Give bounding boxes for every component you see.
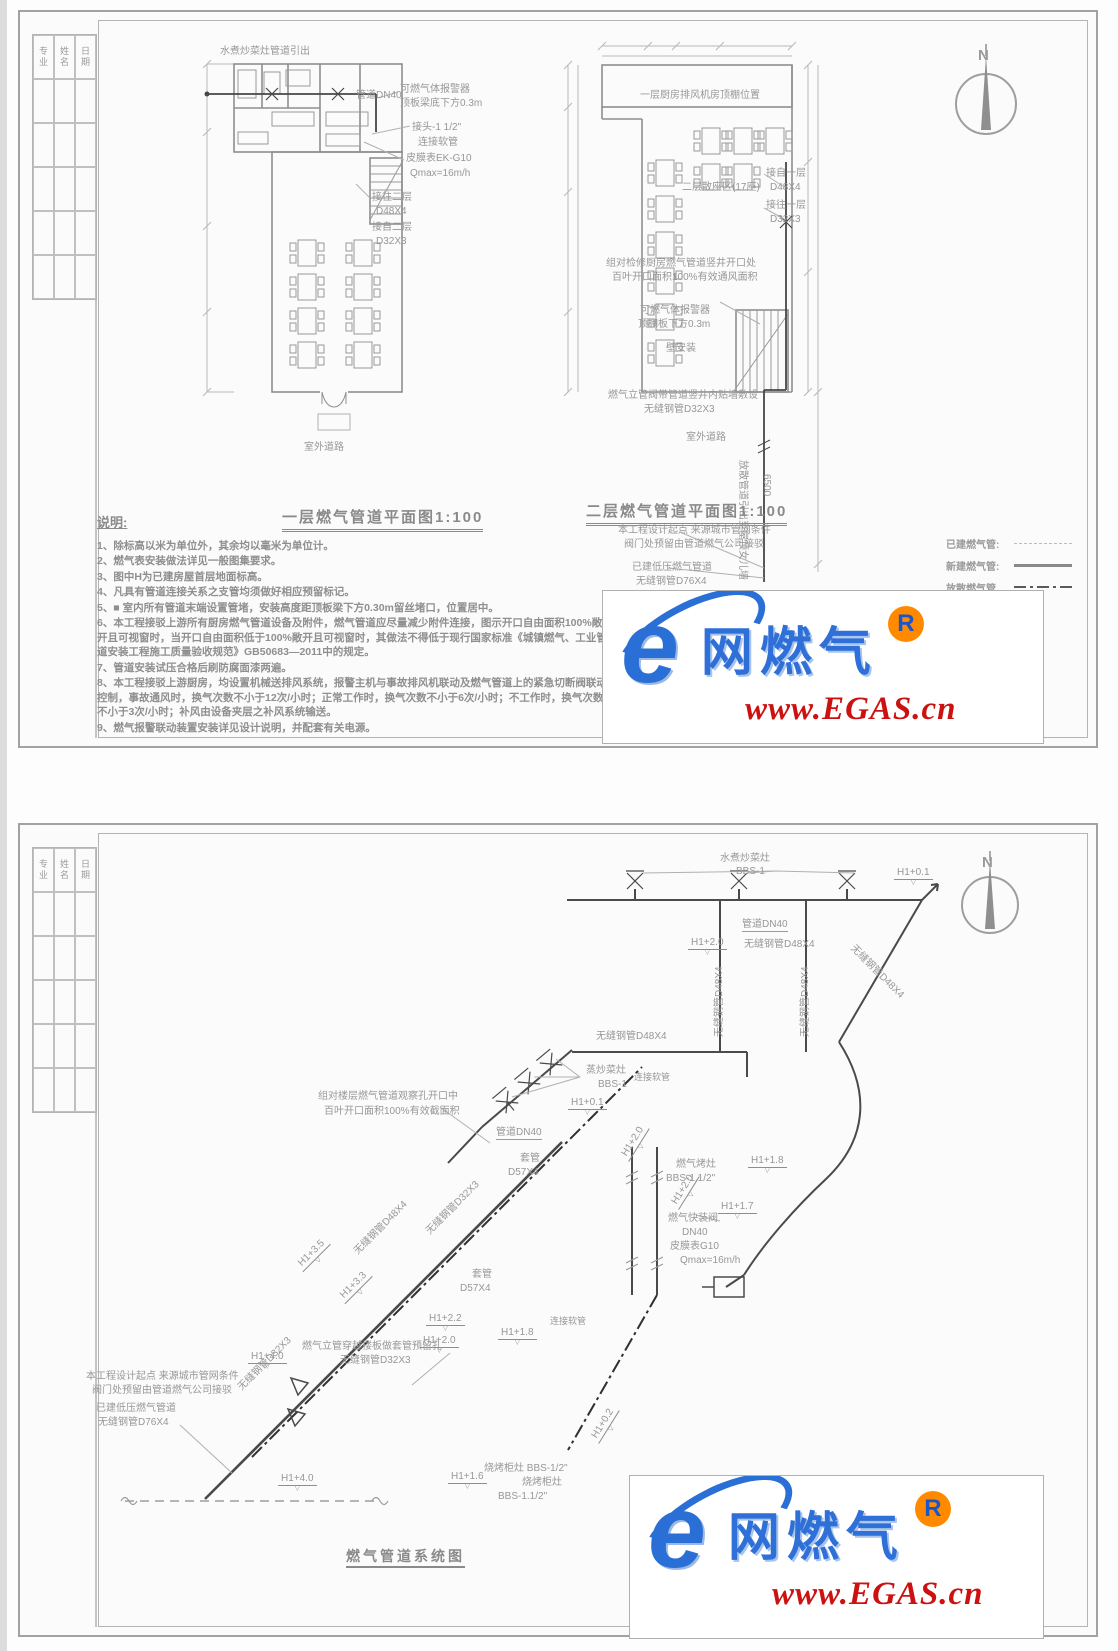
annotation: D48X4 [376, 206, 407, 217]
annotation: H1+2.2 [426, 1313, 465, 1326]
annotation: 无缝钢管D48X4 [744, 939, 815, 950]
titleblock-cell: 姓名 [54, 848, 75, 892]
titleblock-cell [54, 980, 75, 1024]
annotation: 组对检修厨房燃气管道竖井开口处 [606, 258, 756, 269]
sheet1-titleblock: 专业 姓名 日期 [32, 34, 97, 300]
annotation: 燃气烤灶 [676, 1159, 716, 1170]
titleblock-col-label: 专业 [37, 46, 50, 68]
annotation: 无缝钢管D48X4 [714, 966, 725, 1037]
annotation: 连接软管 [634, 1073, 670, 1083]
drawing-canvas: 专业 姓名 日期 [0, 0, 1118, 1651]
annotation: 已建低压燃气管道 [96, 1403, 176, 1414]
annotation: D57X4 [508, 1167, 539, 1178]
annotation: 管道DN40 [742, 919, 788, 932]
annotation: N [982, 855, 993, 872]
legend-line-new [1014, 564, 1072, 567]
annotation: 无缝钢管D48X4 [596, 1031, 667, 1042]
sheet-floor-plans: 专业 姓名 日期 [18, 10, 1098, 748]
annotation: BBS-1.1/2" [498, 1491, 547, 1502]
watermark-box: e 网燃气 R www.EGAS.cn [602, 590, 1044, 744]
annotation: 接往一层 [766, 200, 806, 211]
titleblock-cell [54, 211, 75, 255]
legend-line-vent [1014, 586, 1072, 588]
annotation: 可燃气体报警器 [640, 305, 710, 316]
annotation: H1+4.0 [248, 1351, 287, 1364]
titleblock-cell [54, 1024, 75, 1068]
annotation: D32X3 [770, 214, 801, 225]
annotation: 百叶开口面积100%有效截面积 [324, 1106, 460, 1117]
titleblock-col-label: 姓名 [58, 859, 71, 881]
titleblock-cell [33, 980, 54, 1024]
note-line: 2、燃气表安装做法详见一般图集要求。 [97, 554, 609, 568]
titleblock-cell [33, 167, 54, 211]
note-line: 3、图中H为已建房屋首层地面标高。 [97, 570, 609, 584]
annotation: 管道DN40 [356, 90, 402, 101]
annotation: 本工程设计起点 来源城市管网条件 [86, 1371, 239, 1382]
annotation: BBS-1 [736, 866, 765, 877]
note-line: 1、除标高以米为单位外，其余均以毫米为单位计。 [97, 539, 609, 553]
note-line: 9、燃气报警联动装置安装详见设计说明，并配套有关电源。 [97, 721, 609, 735]
titleblock-cell [33, 211, 54, 255]
annotation: 接自二层 [372, 222, 412, 233]
sheet2-titleblock: 专业 姓名 日期 [32, 847, 97, 1113]
annotation: 烧烤柜灶 BBS-1/2" [484, 1463, 568, 1474]
legend-line-existing [1014, 543, 1072, 544]
note-line: 8、本工程接驳上游厨房，均设置机械送排风系统，报警主机与事故排风机联动及燃气管道… [97, 676, 609, 719]
titleblock-cell [75, 167, 96, 211]
watermark-row: e 网燃气 R [640, 1480, 951, 1584]
titleblock-cell [33, 892, 54, 936]
annotation: 套管 [472, 1269, 492, 1280]
annotation: 顶棚板下方0.3m [638, 319, 710, 330]
titleblock-cell [33, 1068, 54, 1112]
annotation: 无缝钢管D32X3 [340, 1355, 411, 1366]
legend-label: 已建燃气管: [946, 536, 1012, 551]
legend-row-new: 新建燃气管: [946, 554, 1096, 576]
annotation: 阀门处预留由管道燃气公司接驳 [92, 1385, 232, 1396]
annotation: H1+1.6 [448, 1471, 487, 1484]
legend-label: 新建燃气管: [946, 558, 1012, 573]
annotation: 二层燃气管道平面图1:100 [586, 504, 787, 526]
annotation: 燃气管道系统图 [346, 1549, 465, 1568]
annotation: 接头-1 1/2" [412, 122, 461, 133]
note-line: 5、■ 室内所有管道末端设置管堵，安装高度距顶板梁下方0.30m留丝堵口，位置居… [97, 601, 609, 615]
titleblock-cell [54, 255, 75, 299]
annotation: 室外道路 [304, 442, 344, 453]
registered-trademark-icon: R [915, 1491, 951, 1527]
annotation: 顶板梁底下方0.3m [400, 98, 482, 109]
watermark-box: e 网燃气 R www.EGAS.cn [629, 1475, 1044, 1639]
annotation: Qmax=16m/h [410, 168, 470, 179]
annotation: 连接软管 [418, 137, 458, 148]
titleblock-cell: 专业 [33, 848, 54, 892]
titleblock-cell [54, 167, 75, 211]
titleblock-cell: 姓名 [54, 35, 75, 79]
titleblock-cell [54, 123, 75, 167]
watermark-url[interactable]: www.EGAS.cn [745, 691, 957, 728]
ie-logo-icon: e [613, 595, 695, 699]
titleblock-cell [75, 936, 96, 980]
annotation: H1+0.1 [568, 1097, 607, 1110]
annotation: 皮膜表G10 [670, 1241, 719, 1252]
annotation: 已建低压燃气管道 [632, 562, 712, 573]
annotation: H1+4.0 [278, 1473, 317, 1486]
titleblock-cell [54, 892, 75, 936]
titleblock-col-label: 专业 [37, 859, 50, 881]
watermark-row: e 网燃气 R [613, 595, 924, 699]
titleblock-cell [75, 211, 96, 255]
annotation: H1+1.8 [498, 1327, 537, 1340]
annotation: 一层燃气管道平面图1:100 [282, 510, 483, 532]
titleblock-cell [33, 936, 54, 980]
annotation: 接往二层 [372, 192, 412, 203]
annotation: 无缝钢管D76X4 [636, 576, 707, 587]
notes-list: 1、除标高以米为单位外，其余均以毫米为单位计。2、燃气表安装做法详见一般图集要求… [97, 539, 609, 735]
titleblock-cell: 日期 [75, 35, 96, 79]
titleblock-cell [75, 892, 96, 936]
titleblock-cell [54, 936, 75, 980]
titleblock-cell [54, 1068, 75, 1112]
titleblock-cell [75, 1024, 96, 1068]
annotation: BBS-1.1/2" [666, 1173, 715, 1184]
titleblock-col-label: 日期 [79, 859, 92, 881]
annotation: H1+1.7 [718, 1201, 757, 1214]
titleblock-cell [75, 980, 96, 1024]
titleblock-cell [33, 123, 54, 167]
page-edge-strip [0, 0, 7, 1651]
annotation: 水煮炒菜灶 [720, 853, 770, 864]
titleblock-cell [75, 123, 96, 167]
annotation: 一层厨房排风机房顶棚位置 [640, 90, 760, 101]
annotation: 接自一层 [766, 168, 806, 179]
titleblock-cell [75, 1068, 96, 1112]
annotation: 连接软管 [550, 1317, 586, 1327]
annotation: 管道DN40 [496, 1127, 542, 1140]
annotation: 本工程设计起点 来源城市管网条件 [618, 525, 771, 536]
annotation: 套管 [520, 1153, 540, 1164]
annotation: H1+0.1 [894, 867, 933, 880]
annotation: 阀门处预留由管道燃气公司接驳 [624, 539, 764, 550]
annotation: Qmax=16m/h [680, 1255, 740, 1266]
annotation: 皮膜表EK-G10 [406, 153, 472, 164]
annotation: 无缝钢管D32X3 [644, 404, 715, 415]
annotation: 壁安装 [666, 343, 696, 354]
pipe-legend: 已建燃气管: 新建燃气管: 放散燃气管 [946, 532, 1096, 598]
annotation: D32X3 [376, 236, 407, 247]
annotation: 可燃气体报警器 [400, 84, 470, 95]
notes-block: 说明: 1、除标高以米为单位外，其余均以毫米为单位计。2、燃气表安装做法详见一般… [97, 512, 609, 736]
titleblock-cell [33, 79, 54, 123]
annotation: 烧烤柜灶 [522, 1477, 562, 1488]
annotation: 无缝钢管D76X4 [98, 1417, 169, 1428]
titleblock-cell [75, 255, 96, 299]
titleblock-col-label: 日期 [79, 46, 92, 68]
annotation: 组对楼层燃气管道观察孔开口中 [318, 1091, 458, 1102]
annotation: 无缝钢管D48X4 [800, 966, 811, 1037]
note-line: 4、凡具有管道连接关系之支管均须做好相应预留标记。 [97, 585, 609, 599]
legend-row-existing: 已建燃气管: [946, 532, 1096, 554]
titleblock-cell: 日期 [75, 848, 96, 892]
annotation: BBS-1 [598, 1079, 627, 1090]
annotation: H1+2.0 [688, 937, 727, 950]
titleblock-cell [54, 79, 75, 123]
titleblock-cell [33, 255, 54, 299]
annotation: H1+1.8 [748, 1155, 787, 1168]
annotation: DN40 [682, 1227, 708, 1238]
titleblock-col-label: 姓名 [58, 46, 71, 68]
annotation: 水煮炒菜灶管道引出 [220, 46, 310, 57]
annotation: 6500 [761, 474, 772, 496]
annotation: D48X4 [770, 182, 801, 193]
annotation: 百叶开口面积100%有效通风面积 [612, 272, 758, 283]
annotation: N [978, 48, 989, 65]
note-line: 7、管道安装试压合格后刷防腐面漆两遍。 [97, 661, 609, 675]
titleblock-cell [75, 79, 96, 123]
sheet-system-diagram: 专业 姓名 日期 [18, 823, 1098, 1637]
annotation: D57X4 [460, 1283, 491, 1294]
registered-trademark-icon: R [888, 606, 924, 642]
ie-logo-icon: e [640, 1480, 722, 1584]
annotation: 燃气立管阀带管道竖井内贴墙敷设 [608, 390, 758, 401]
annotation: 蒸炒菜灶 [586, 1065, 626, 1076]
annotation: 二层散座区(17座) [682, 182, 760, 193]
note-line: 6、本工程接驳上游所有厨房燃气管道设备及附件，燃气管道应尽量减少附件连接，图示开… [97, 616, 609, 659]
titleblock-cell: 专业 [33, 35, 54, 79]
watermark-url[interactable]: www.EGAS.cn [772, 1576, 984, 1613]
annotation: 室外道路 [686, 432, 726, 443]
annotation: 燃气立管穿越楼板做套管预留孔 [302, 1341, 442, 1352]
annotation: 燃气快装阀 [668, 1213, 718, 1224]
titleblock-cell [33, 1024, 54, 1068]
